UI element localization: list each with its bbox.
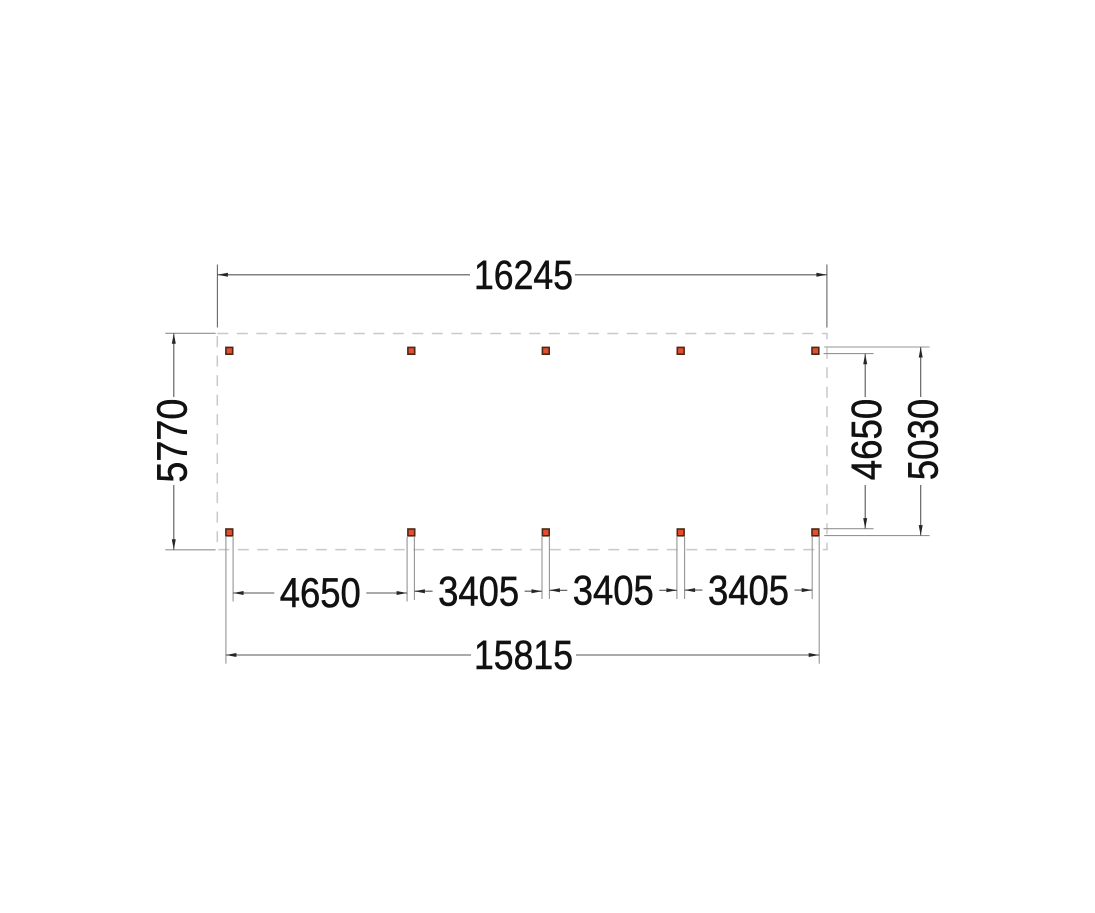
svg-text:4650: 4650 bbox=[844, 399, 891, 481]
svg-text:3405: 3405 bbox=[438, 567, 519, 614]
svg-text:4650: 4650 bbox=[280, 569, 361, 616]
svg-text:3405: 3405 bbox=[708, 566, 789, 613]
svg-text:3405: 3405 bbox=[573, 567, 654, 614]
svg-text:15815: 15815 bbox=[474, 632, 573, 678]
svg-text:5770: 5770 bbox=[150, 399, 197, 483]
svg-text:16245: 16245 bbox=[474, 252, 573, 298]
svg-text:5030: 5030 bbox=[900, 399, 947, 481]
